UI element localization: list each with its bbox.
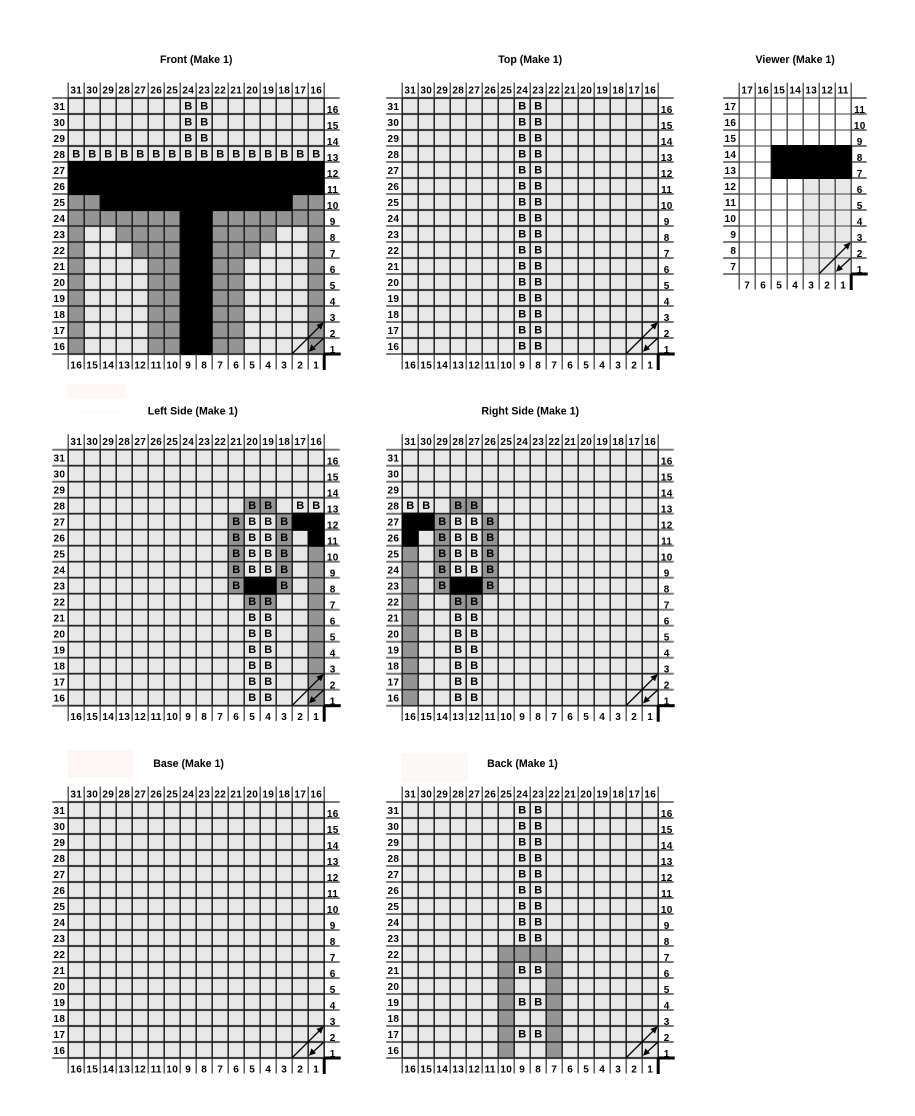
svg-text:16: 16: [387, 342, 399, 353]
svg-text:9: 9: [664, 921, 670, 932]
svg-text:19: 19: [262, 437, 274, 448]
svg-text:8: 8: [330, 233, 336, 244]
svg-text:16: 16: [404, 712, 416, 723]
svg-text:15: 15: [420, 712, 432, 723]
svg-text:18: 18: [387, 1014, 399, 1025]
svg-text:16: 16: [327, 105, 339, 116]
svg-text:8: 8: [664, 937, 670, 948]
svg-text:9: 9: [330, 569, 336, 580]
svg-text:5: 5: [776, 280, 782, 291]
svg-text:31: 31: [53, 806, 65, 817]
svg-text:21: 21: [564, 437, 576, 448]
svg-text:6: 6: [233, 360, 239, 371]
svg-text:B: B: [486, 580, 494, 592]
svg-text:B: B: [280, 580, 288, 592]
svg-text:14: 14: [102, 1064, 114, 1075]
svg-text:5: 5: [330, 985, 336, 996]
svg-text:2: 2: [330, 1033, 336, 1044]
svg-text:13: 13: [327, 505, 339, 516]
svg-text:3: 3: [615, 360, 621, 371]
svg-text:16: 16: [404, 1064, 416, 1075]
svg-text:B: B: [534, 885, 542, 897]
svg-text:21: 21: [230, 437, 242, 448]
svg-text:B: B: [312, 149, 320, 161]
svg-text:B: B: [438, 564, 446, 576]
svg-text:21: 21: [53, 966, 65, 977]
svg-text:16: 16: [70, 712, 82, 723]
svg-text:B: B: [88, 149, 96, 161]
svg-text:5: 5: [664, 985, 670, 996]
svg-text:B: B: [534, 821, 542, 833]
svg-text:7: 7: [330, 601, 336, 612]
svg-text:B: B: [470, 516, 478, 528]
svg-text:13: 13: [661, 857, 673, 868]
svg-text:29: 29: [102, 86, 114, 97]
svg-text:28: 28: [118, 86, 130, 97]
svg-text:B: B: [200, 117, 208, 129]
svg-text:B: B: [454, 644, 462, 656]
svg-text:22: 22: [53, 246, 65, 257]
svg-text:25: 25: [53, 550, 65, 561]
svg-text:21: 21: [387, 614, 399, 625]
svg-text:5: 5: [330, 281, 336, 292]
svg-text:23: 23: [53, 230, 65, 241]
svg-text:26: 26: [387, 182, 399, 193]
svg-text:Right Side (Make 1): Right Side (Make 1): [481, 406, 579, 418]
svg-text:14: 14: [327, 137, 339, 148]
svg-text:25: 25: [387, 198, 399, 209]
svg-text:31: 31: [70, 86, 82, 97]
svg-text:23: 23: [387, 582, 399, 593]
svg-text:B: B: [248, 644, 256, 656]
svg-text:9: 9: [857, 137, 863, 148]
svg-text:15: 15: [327, 473, 339, 484]
svg-text:B: B: [454, 564, 462, 576]
svg-text:4: 4: [664, 649, 670, 660]
svg-text:8: 8: [730, 246, 736, 257]
svg-text:B: B: [518, 149, 526, 161]
svg-text:25: 25: [53, 902, 65, 913]
svg-text:28: 28: [118, 790, 130, 801]
svg-text:11: 11: [485, 712, 496, 723]
svg-text:B: B: [470, 564, 478, 576]
svg-text:29: 29: [53, 486, 65, 497]
svg-text:B: B: [438, 548, 446, 560]
svg-text:21: 21: [564, 86, 576, 97]
svg-text:B: B: [248, 660, 256, 672]
svg-text:B: B: [518, 821, 526, 833]
svg-text:10: 10: [327, 553, 339, 564]
svg-text:B: B: [232, 580, 240, 592]
svg-text:31: 31: [387, 102, 399, 113]
svg-text:B: B: [470, 676, 478, 688]
svg-text:9: 9: [330, 217, 336, 228]
svg-text:B: B: [470, 500, 478, 512]
svg-text:5: 5: [330, 633, 336, 644]
svg-text:3: 3: [615, 712, 621, 723]
svg-text:22: 22: [53, 598, 65, 609]
svg-text:B: B: [200, 133, 208, 145]
svg-text:4: 4: [599, 1064, 605, 1075]
svg-text:12: 12: [724, 182, 736, 193]
svg-text:13: 13: [327, 857, 339, 868]
svg-text:B: B: [184, 133, 192, 145]
svg-text:B: B: [248, 149, 256, 161]
svg-text:2: 2: [824, 280, 830, 291]
svg-text:24: 24: [53, 566, 65, 577]
svg-text:11: 11: [485, 1064, 496, 1075]
svg-text:13: 13: [452, 712, 464, 723]
svg-text:B: B: [518, 885, 526, 897]
svg-text:12: 12: [327, 169, 339, 180]
svg-text:22: 22: [548, 437, 560, 448]
svg-text:B: B: [312, 500, 320, 512]
svg-text:B: B: [264, 548, 272, 560]
svg-text:B: B: [518, 245, 526, 257]
svg-text:B: B: [280, 548, 288, 560]
svg-text:B: B: [72, 149, 80, 161]
svg-text:16: 16: [387, 1046, 399, 1057]
svg-text:B: B: [280, 516, 288, 528]
svg-text:30: 30: [86, 86, 98, 97]
svg-text:B: B: [518, 197, 526, 209]
svg-text:B: B: [280, 149, 288, 161]
svg-text:5: 5: [249, 360, 255, 371]
svg-text:10: 10: [327, 905, 339, 916]
svg-text:9: 9: [185, 712, 191, 723]
svg-text:B: B: [518, 933, 526, 945]
svg-text:7: 7: [664, 249, 670, 260]
svg-text:18: 18: [387, 662, 399, 673]
svg-text:26: 26: [150, 437, 162, 448]
svg-text:15: 15: [661, 473, 673, 484]
svg-text:8: 8: [664, 233, 670, 244]
svg-text:27: 27: [387, 166, 399, 177]
svg-text:21: 21: [564, 790, 576, 801]
svg-text:4: 4: [792, 280, 798, 291]
svg-text:B: B: [518, 965, 526, 977]
svg-text:19: 19: [53, 646, 65, 657]
svg-text:B: B: [486, 564, 494, 576]
svg-text:B: B: [534, 213, 542, 225]
svg-text:B: B: [454, 628, 462, 640]
svg-text:B: B: [518, 853, 526, 865]
svg-text:14: 14: [102, 712, 114, 723]
svg-text:B: B: [470, 612, 478, 624]
svg-text:20: 20: [246, 790, 258, 801]
svg-text:17: 17: [628, 790, 640, 801]
svg-text:26: 26: [150, 86, 162, 97]
svg-text:18: 18: [53, 310, 65, 321]
svg-text:10: 10: [724, 214, 736, 225]
svg-text:4: 4: [330, 649, 336, 660]
svg-text:11: 11: [854, 105, 865, 116]
svg-text:2: 2: [631, 360, 637, 371]
svg-text:B: B: [534, 261, 542, 273]
svg-text:10: 10: [661, 905, 673, 916]
svg-text:28: 28: [118, 437, 130, 448]
svg-text:B: B: [454, 516, 462, 528]
svg-text:Left Side (Make 1): Left Side (Make 1): [148, 406, 238, 418]
svg-text:16: 16: [644, 86, 656, 97]
svg-text:18: 18: [278, 790, 290, 801]
svg-text:12: 12: [134, 360, 146, 371]
svg-text:25: 25: [166, 86, 178, 97]
svg-text:8: 8: [330, 937, 336, 948]
svg-text:B: B: [470, 644, 478, 656]
svg-text:8: 8: [201, 360, 207, 371]
svg-text:9: 9: [519, 360, 525, 371]
svg-text:B: B: [200, 101, 208, 113]
svg-text:7: 7: [857, 169, 863, 180]
svg-text:20: 20: [246, 437, 258, 448]
svg-text:B: B: [296, 149, 304, 161]
svg-text:10: 10: [500, 360, 512, 371]
svg-text:B: B: [248, 596, 256, 608]
svg-text:30: 30: [53, 470, 65, 481]
svg-text:12: 12: [661, 521, 673, 532]
svg-text:11: 11: [327, 185, 338, 196]
svg-text:B: B: [534, 869, 542, 881]
svg-text:12: 12: [468, 1064, 480, 1075]
svg-text:B: B: [232, 548, 240, 560]
svg-text:9: 9: [730, 230, 736, 241]
svg-text:B: B: [534, 341, 542, 353]
svg-text:13: 13: [118, 1064, 130, 1075]
svg-text:26: 26: [53, 534, 65, 545]
svg-text:11: 11: [327, 537, 338, 548]
svg-text:6: 6: [233, 712, 239, 723]
svg-text:11: 11: [327, 889, 338, 900]
svg-text:2: 2: [631, 1064, 637, 1075]
svg-text:16: 16: [70, 360, 82, 371]
svg-text:30: 30: [53, 118, 65, 129]
svg-text:4: 4: [664, 297, 670, 308]
svg-text:16: 16: [661, 457, 673, 468]
svg-text:B: B: [518, 917, 526, 929]
svg-text:B: B: [454, 548, 462, 560]
svg-text:24: 24: [53, 918, 65, 929]
svg-text:15: 15: [327, 121, 339, 132]
svg-text:22: 22: [53, 950, 65, 961]
svg-text:7: 7: [744, 280, 750, 291]
svg-text:9: 9: [519, 1064, 525, 1075]
svg-text:14: 14: [102, 360, 114, 371]
svg-text:28: 28: [452, 437, 464, 448]
svg-text:16: 16: [310, 437, 322, 448]
svg-text:25: 25: [500, 86, 512, 97]
svg-text:3: 3: [808, 280, 814, 291]
svg-text:20: 20: [53, 278, 65, 289]
svg-text:20: 20: [580, 86, 592, 97]
svg-text:B: B: [534, 309, 542, 321]
svg-text:9: 9: [664, 217, 670, 228]
svg-text:19: 19: [53, 998, 65, 1009]
svg-text:11: 11: [661, 185, 672, 196]
svg-text:16: 16: [310, 790, 322, 801]
svg-text:31: 31: [404, 437, 416, 448]
svg-text:14: 14: [661, 489, 673, 500]
svg-text:B: B: [168, 149, 176, 161]
svg-text:23: 23: [532, 437, 544, 448]
svg-text:B: B: [406, 500, 414, 512]
svg-text:B: B: [232, 564, 240, 576]
svg-text:16: 16: [327, 809, 339, 820]
svg-text:B: B: [486, 548, 494, 560]
svg-text:30: 30: [420, 790, 432, 801]
svg-text:B: B: [470, 596, 478, 608]
svg-text:4: 4: [599, 712, 605, 723]
svg-text:18: 18: [53, 1014, 65, 1025]
svg-text:31: 31: [387, 806, 399, 817]
svg-text:24: 24: [387, 918, 399, 929]
svg-text:26: 26: [150, 790, 162, 801]
svg-text:23: 23: [532, 790, 544, 801]
svg-text:B: B: [264, 692, 272, 704]
svg-text:7: 7: [551, 1064, 557, 1075]
svg-text:B: B: [518, 101, 526, 113]
svg-text:10: 10: [500, 1064, 512, 1075]
svg-text:12: 12: [134, 1064, 146, 1075]
svg-text:5: 5: [249, 1064, 255, 1075]
svg-text:20: 20: [387, 630, 399, 641]
svg-text:18: 18: [278, 86, 290, 97]
svg-text:28: 28: [387, 150, 399, 161]
svg-text:3: 3: [857, 233, 863, 244]
svg-text:7: 7: [664, 953, 670, 964]
svg-text:16: 16: [661, 105, 673, 116]
svg-text:30: 30: [387, 822, 399, 833]
svg-text:2: 2: [664, 681, 670, 692]
svg-text:B: B: [534, 117, 542, 129]
svg-text:9: 9: [185, 1064, 191, 1075]
svg-text:25: 25: [166, 790, 178, 801]
svg-text:28: 28: [452, 86, 464, 97]
svg-text:13: 13: [452, 1064, 464, 1075]
svg-text:17: 17: [387, 326, 399, 337]
svg-text:B: B: [248, 500, 256, 512]
svg-text:B: B: [232, 516, 240, 528]
svg-text:14: 14: [789, 86, 801, 97]
svg-text:25: 25: [387, 550, 399, 561]
svg-text:B: B: [518, 165, 526, 177]
svg-text:30: 30: [387, 118, 399, 129]
svg-text:13: 13: [452, 360, 464, 371]
svg-text:10: 10: [166, 712, 178, 723]
svg-text:15: 15: [86, 1064, 98, 1075]
svg-text:8: 8: [664, 585, 670, 596]
svg-text:Viewer (Make 1): Viewer (Make 1): [756, 54, 835, 66]
svg-text:24: 24: [387, 214, 399, 225]
svg-text:B: B: [534, 933, 542, 945]
svg-text:9: 9: [519, 712, 525, 723]
svg-text:17: 17: [628, 86, 640, 97]
svg-text:B: B: [454, 676, 462, 688]
svg-text:20: 20: [387, 982, 399, 993]
svg-text:22: 22: [214, 86, 226, 97]
svg-text:1: 1: [647, 360, 653, 371]
svg-text:B: B: [454, 500, 462, 512]
svg-text:11: 11: [151, 712, 162, 723]
svg-text:18: 18: [612, 86, 624, 97]
svg-text:19: 19: [596, 86, 608, 97]
svg-text:20: 20: [580, 437, 592, 448]
svg-text:B: B: [200, 149, 208, 161]
svg-text:30: 30: [86, 790, 98, 801]
svg-text:10: 10: [166, 1064, 178, 1075]
svg-text:15: 15: [86, 712, 98, 723]
svg-text:19: 19: [262, 86, 274, 97]
svg-text:B: B: [534, 149, 542, 161]
svg-text:B: B: [534, 277, 542, 289]
svg-text:19: 19: [387, 294, 399, 305]
svg-text:16: 16: [724, 118, 736, 129]
svg-text:27: 27: [53, 518, 65, 529]
svg-text:12: 12: [327, 873, 339, 884]
svg-text:6: 6: [567, 1064, 573, 1075]
svg-text:29: 29: [436, 437, 448, 448]
svg-text:B: B: [248, 516, 256, 528]
svg-text:B: B: [534, 901, 542, 913]
svg-text:30: 30: [53, 822, 65, 833]
svg-text:16: 16: [327, 457, 339, 468]
svg-text:8: 8: [857, 153, 863, 164]
svg-text:26: 26: [387, 886, 399, 897]
svg-text:18: 18: [53, 662, 65, 673]
svg-text:17: 17: [294, 86, 306, 97]
svg-text:14: 14: [661, 841, 673, 852]
svg-text:B: B: [486, 532, 494, 544]
svg-text:19: 19: [387, 998, 399, 1009]
svg-text:21: 21: [387, 966, 399, 977]
svg-text:17: 17: [741, 86, 753, 97]
svg-text:B: B: [470, 628, 478, 640]
svg-text:26: 26: [53, 886, 65, 897]
svg-text:B: B: [264, 564, 272, 576]
svg-text:B: B: [470, 660, 478, 672]
svg-text:24: 24: [53, 214, 65, 225]
svg-text:B: B: [248, 676, 256, 688]
svg-text:14: 14: [436, 712, 448, 723]
svg-text:3: 3: [330, 313, 336, 324]
svg-text:23: 23: [532, 86, 544, 97]
svg-text:16: 16: [661, 809, 673, 820]
svg-text:14: 14: [327, 841, 339, 852]
svg-text:21: 21: [53, 262, 65, 273]
svg-text:B: B: [264, 644, 272, 656]
svg-text:B: B: [534, 293, 542, 305]
svg-text:3: 3: [330, 665, 336, 676]
svg-text:B: B: [184, 117, 192, 129]
svg-text:7: 7: [551, 360, 557, 371]
svg-text:13: 13: [661, 505, 673, 516]
svg-text:B: B: [518, 325, 526, 337]
svg-text:8: 8: [535, 1064, 541, 1075]
svg-text:18: 18: [612, 437, 624, 448]
svg-text:13: 13: [805, 86, 817, 97]
svg-text:B: B: [120, 149, 128, 161]
svg-text:1: 1: [647, 1064, 653, 1075]
svg-text:13: 13: [327, 153, 339, 164]
svg-text:16: 16: [404, 360, 416, 371]
svg-text:24: 24: [387, 566, 399, 577]
svg-text:B: B: [454, 692, 462, 704]
svg-text:4: 4: [599, 360, 605, 371]
svg-text:10: 10: [661, 201, 673, 212]
svg-text:31: 31: [404, 790, 416, 801]
svg-text:31: 31: [70, 790, 82, 801]
svg-text:B: B: [454, 596, 462, 608]
